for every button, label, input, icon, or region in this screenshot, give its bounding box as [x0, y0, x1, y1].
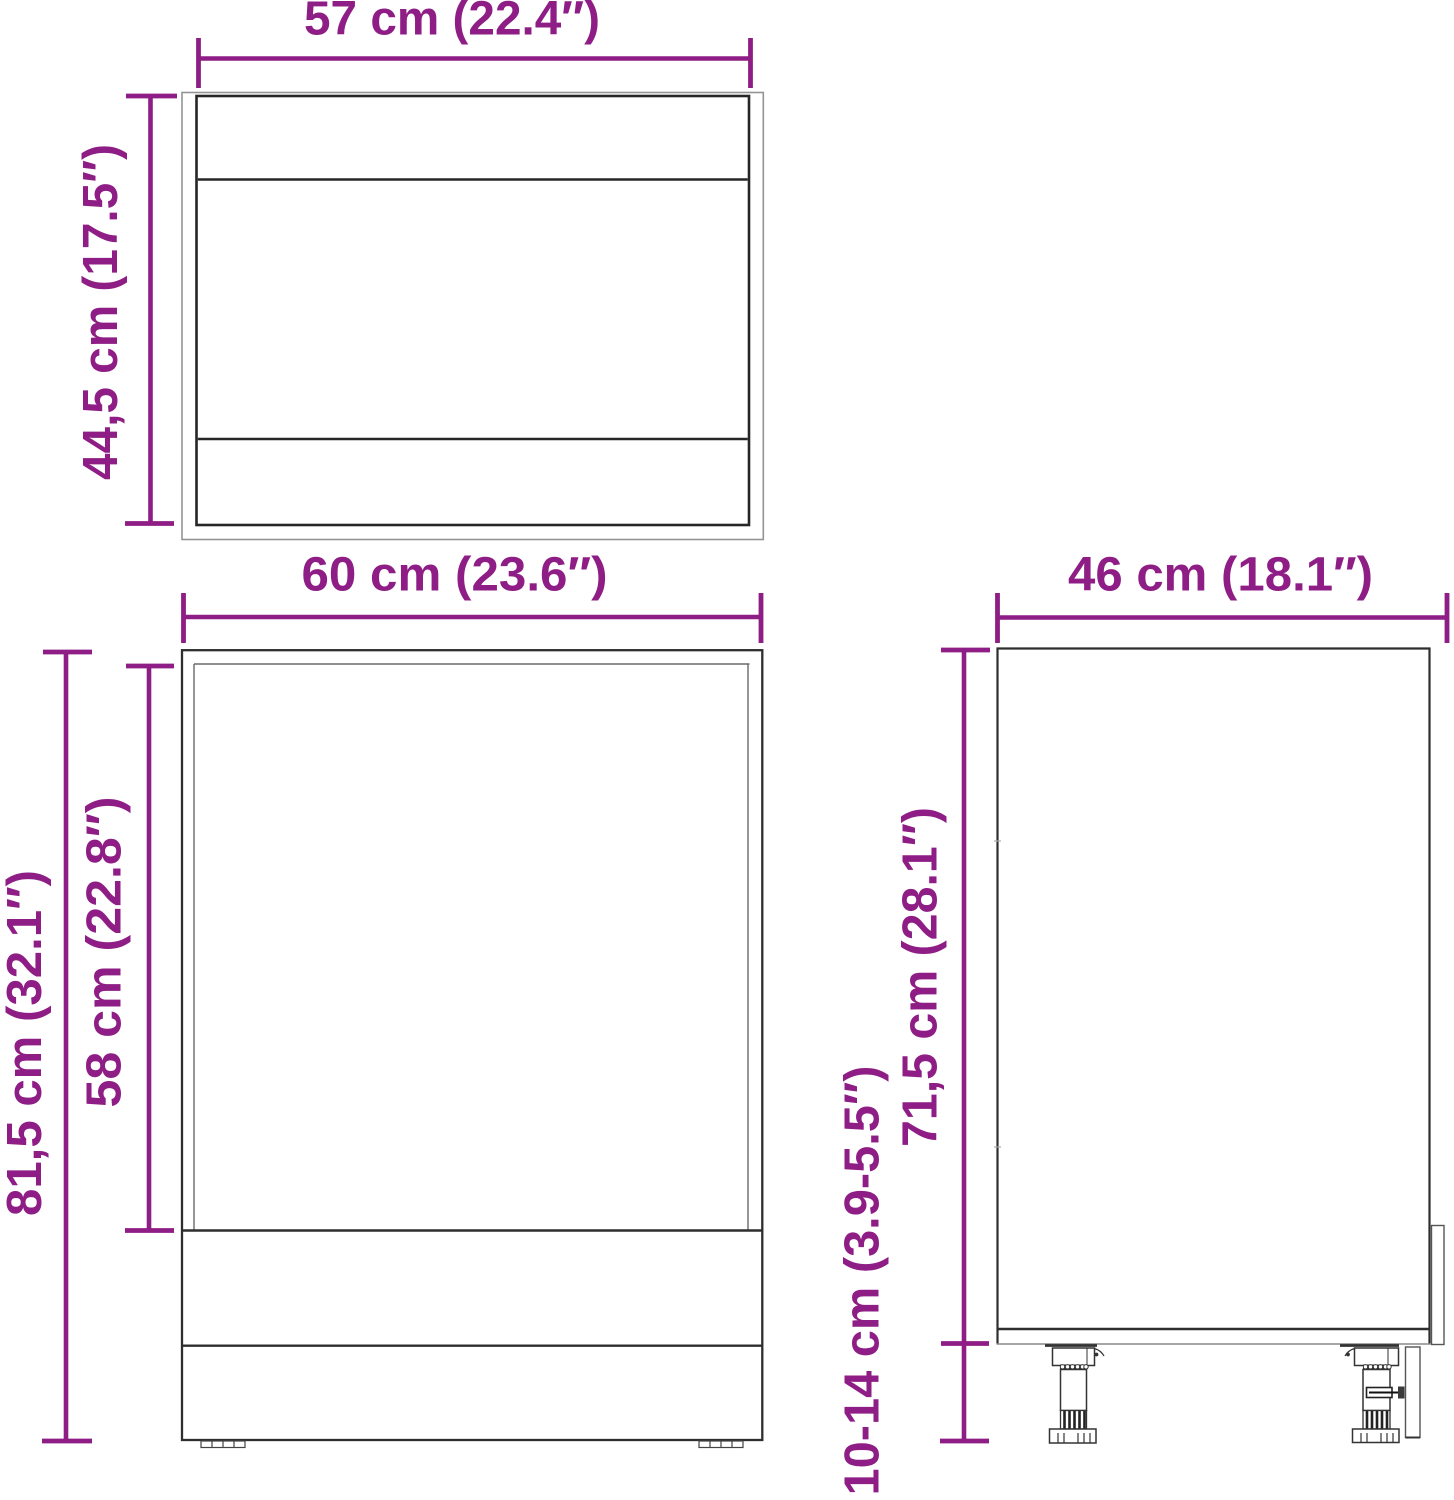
svg-text:81,5 cm (32.1″): 81,5 cm (32.1″): [0, 870, 52, 1216]
svg-text:10-14 cm (3.9-5.5″): 10-14 cm (3.9-5.5″): [835, 1066, 890, 1496]
svg-text:57 cm (22.4″): 57 cm (22.4″): [304, 0, 600, 46]
svg-text:58 cm (22.8″): 58 cm (22.8″): [77, 797, 132, 1108]
svg-text:46 cm (18.1″): 46 cm (18.1″): [1068, 549, 1373, 602]
svg-text:71,5 cm (28.1″): 71,5 cm (28.1″): [893, 807, 948, 1147]
svg-text:44,5 cm (17.5″): 44,5 cm (17.5″): [73, 144, 128, 480]
svg-text:60 cm (23.6″): 60 cm (23.6″): [302, 549, 608, 602]
